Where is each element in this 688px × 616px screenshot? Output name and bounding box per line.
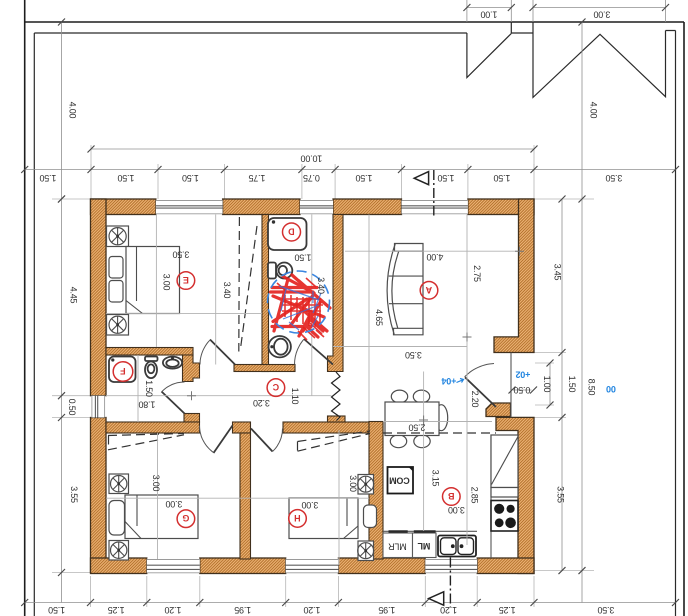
svg-text:3.50: 3.50	[172, 250, 189, 260]
svg-text:3.50: 3.50	[605, 173, 622, 183]
svg-text:3.00: 3.00	[165, 499, 182, 509]
svg-text:1.95: 1.95	[378, 605, 395, 615]
svg-text:1.50: 1.50	[294, 253, 311, 263]
svg-text:1.50: 1.50	[493, 173, 510, 183]
svg-text:1.50: 1.50	[437, 173, 454, 183]
svg-text:ML: ML	[417, 541, 430, 551]
svg-text:0.50: 0.50	[513, 385, 530, 395]
svg-text:1.25: 1.25	[499, 605, 516, 615]
svg-text:3.40: 3.40	[316, 277, 326, 294]
svg-text:3.50: 3.50	[405, 350, 422, 360]
svg-text:1.00: 1.00	[542, 376, 552, 393]
svg-text:+02: +02	[515, 370, 530, 380]
svg-text:3.00: 3.00	[151, 475, 161, 492]
svg-text:4.00: 4.00	[68, 102, 78, 119]
svg-text:MLR: MLR	[388, 542, 407, 552]
svg-text:H: H	[294, 513, 300, 523]
svg-text:1.80: 1.80	[138, 400, 155, 410]
svg-text:3.00: 3.00	[162, 274, 172, 291]
svg-text:E: E	[183, 275, 189, 285]
svg-text:1.20: 1.20	[440, 605, 457, 615]
svg-text:1.50: 1.50	[48, 605, 65, 615]
svg-text:1.50: 1.50	[144, 380, 154, 397]
svg-text:1.50: 1.50	[355, 173, 372, 183]
svg-text:3.40: 3.40	[222, 282, 232, 299]
svg-text:3.00: 3.00	[593, 10, 610, 20]
svg-text:3.45: 3.45	[553, 264, 563, 281]
svg-text:1.50: 1.50	[39, 173, 56, 183]
svg-text:1.95: 1.95	[234, 605, 251, 615]
svg-text:3.55: 3.55	[69, 486, 79, 503]
svg-text:3.00: 3.00	[448, 505, 465, 515]
svg-text:2.20: 2.20	[470, 391, 480, 408]
svg-text:1.25: 1.25	[108, 605, 125, 615]
svg-text:G: G	[182, 513, 189, 523]
svg-text:C: C	[272, 382, 279, 392]
svg-text:00: 00	[606, 384, 616, 394]
svg-text:3.50: 3.50	[597, 605, 614, 615]
svg-text:1.20: 1.20	[303, 605, 320, 615]
svg-text:2.75: 2.75	[472, 265, 482, 282]
svg-text:COM: COM	[389, 476, 409, 486]
svg-text:4.45: 4.45	[69, 287, 79, 304]
svg-text:1.75: 1.75	[248, 173, 265, 183]
svg-text:3.00: 3.00	[301, 500, 318, 510]
svg-text:1.50: 1.50	[182, 173, 199, 183]
svg-text:3.20: 3.20	[253, 398, 270, 408]
svg-text:A: A	[425, 285, 432, 295]
svg-text:3.55: 3.55	[556, 486, 566, 503]
svg-text:B: B	[447, 491, 454, 501]
svg-text:D: D	[288, 227, 295, 237]
svg-text:4.65: 4.65	[374, 309, 384, 326]
svg-text:4.00: 4.00	[589, 102, 599, 119]
svg-text:1.00: 1.00	[480, 10, 497, 20]
svg-text:10.00: 10.00	[301, 154, 323, 164]
svg-text:0.75: 0.75	[303, 173, 320, 183]
svg-text:+04: +04	[441, 376, 456, 386]
svg-text:2.85: 2.85	[470, 487, 480, 504]
svg-text:2.50: 2.50	[408, 423, 425, 433]
svg-text:3.00: 3.00	[348, 475, 358, 492]
svg-text:4.00: 4.00	[426, 252, 443, 262]
svg-text:1.50: 1.50	[567, 376, 577, 393]
svg-text:0.50: 0.50	[67, 399, 77, 416]
svg-text:1.10: 1.10	[290, 388, 300, 405]
svg-text:F: F	[120, 366, 126, 376]
svg-text:3.15: 3.15	[431, 470, 441, 487]
svg-text:8.50: 8.50	[587, 379, 597, 396]
svg-text:1.50: 1.50	[117, 173, 134, 183]
svg-text:1.20: 1.20	[164, 605, 181, 615]
